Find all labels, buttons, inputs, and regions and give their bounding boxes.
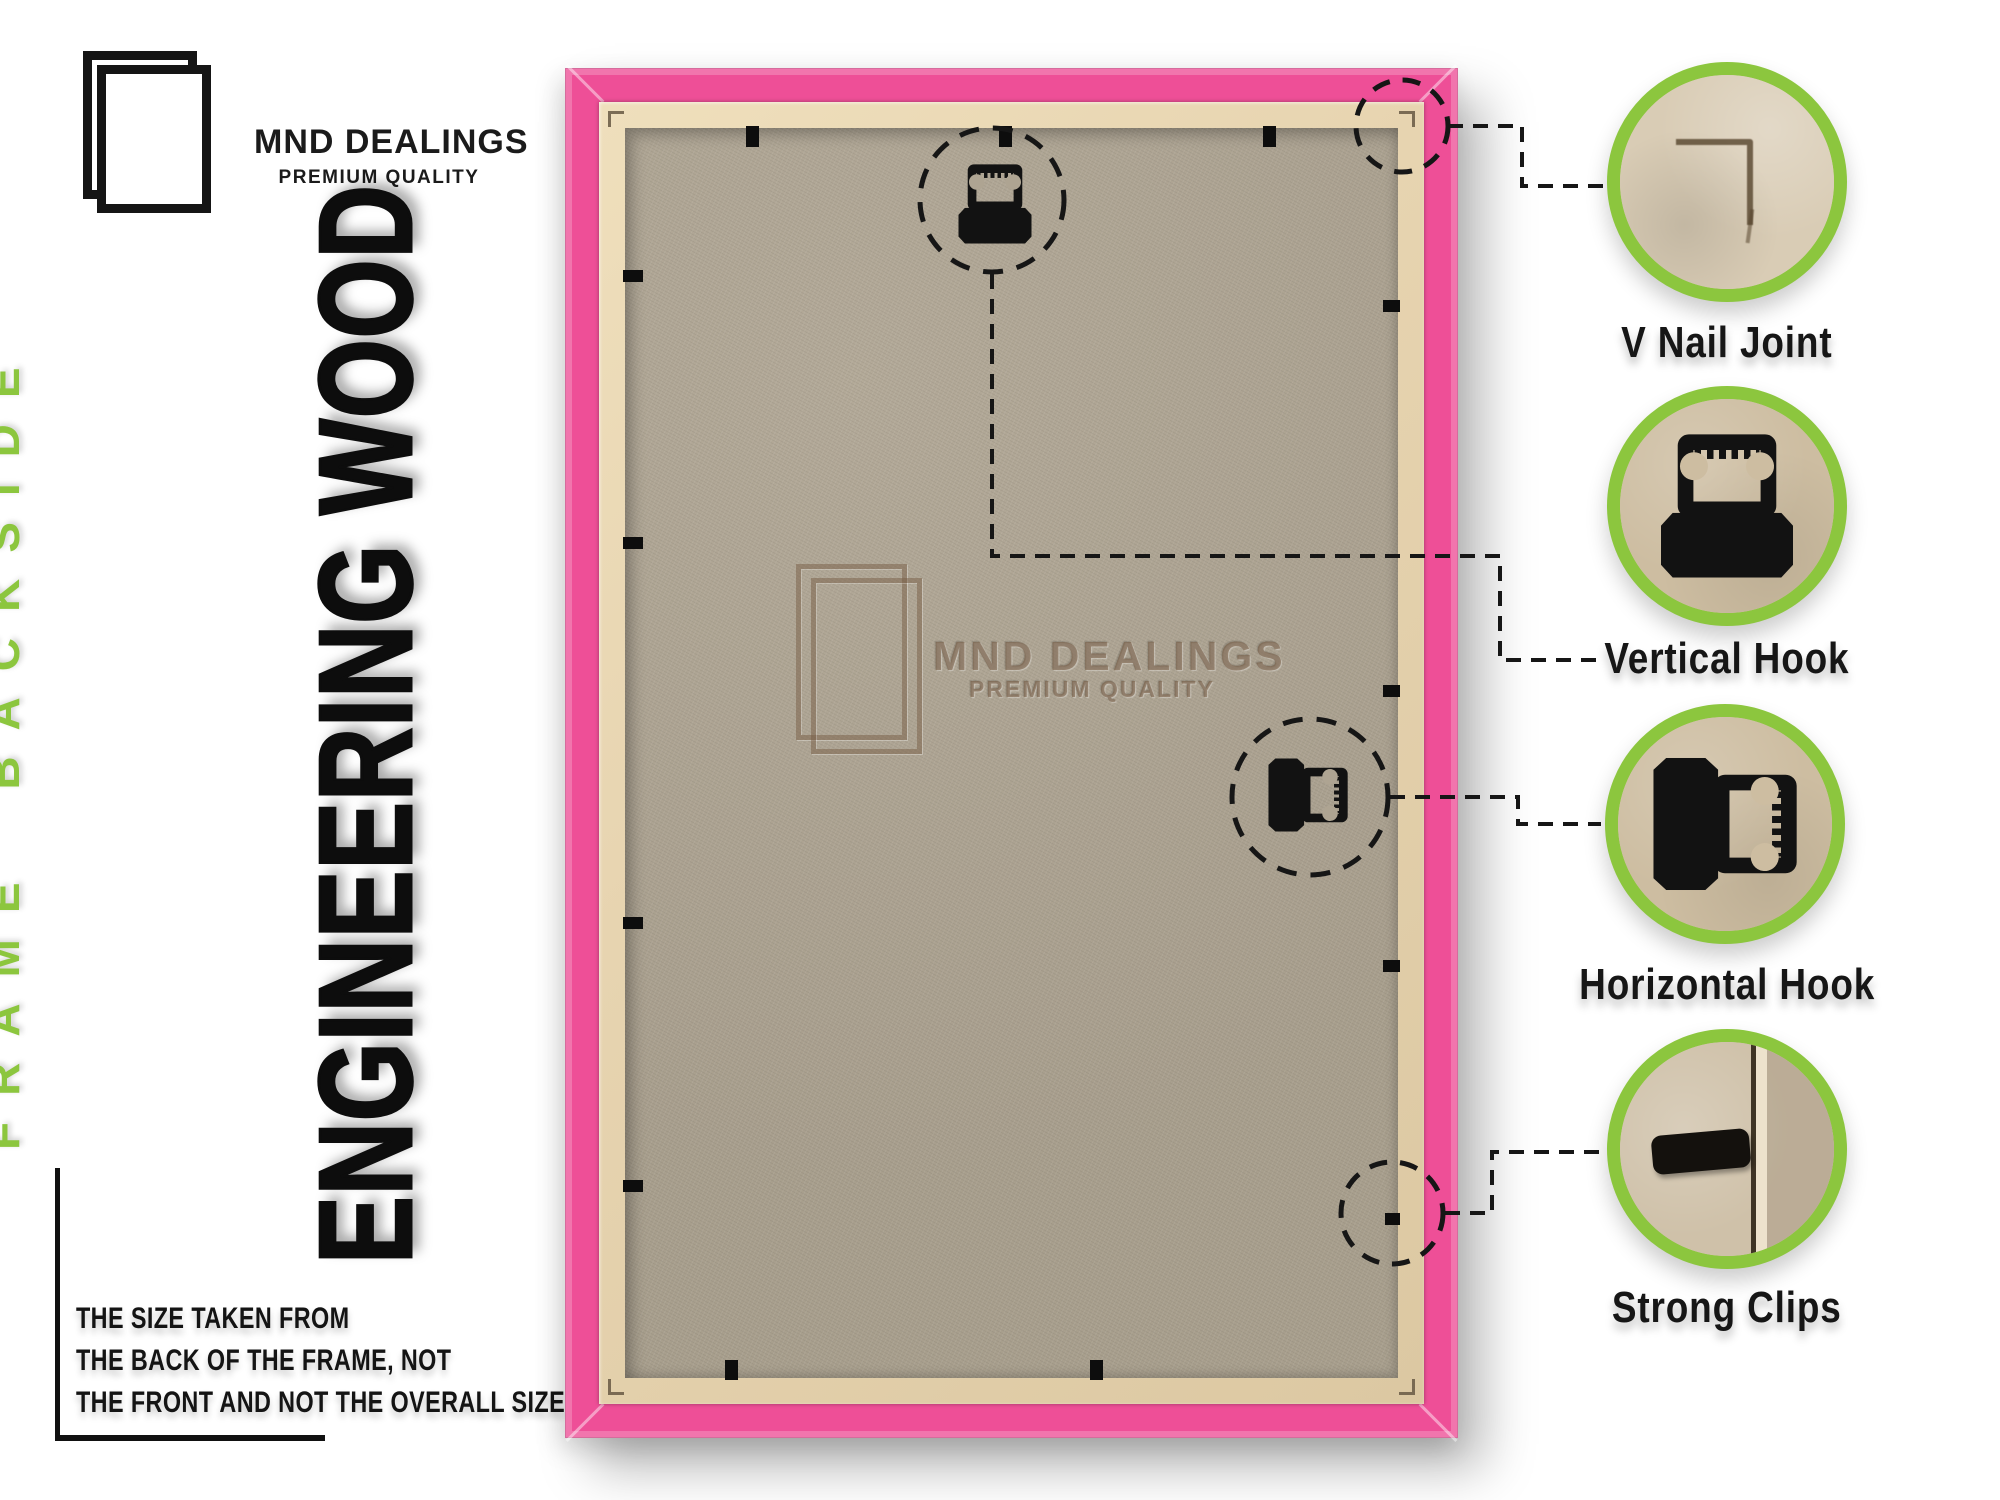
hook-screw-hole bbox=[1322, 769, 1338, 785]
strong-clip bbox=[623, 270, 643, 282]
strong-clip bbox=[746, 126, 759, 147]
clip-tab bbox=[1651, 1128, 1752, 1175]
strong-clip bbox=[1383, 685, 1400, 697]
horizontal-hook-photo bbox=[1618, 717, 1832, 931]
hook-plate bbox=[1661, 513, 1793, 578]
strong-clip bbox=[1383, 960, 1400, 972]
hook-plate bbox=[1653, 758, 1718, 890]
brand-name: MND DEALINGS bbox=[254, 123, 504, 162]
callout-photo-strong-clips bbox=[1607, 1029, 1847, 1269]
watermark: MND DEALINGS PREMIUM QUALITY bbox=[625, 128, 1398, 1378]
callout-photo-v-nail-joint bbox=[1607, 62, 1847, 302]
horizontal-hook-hardware bbox=[1268, 758, 1347, 831]
watermark-logo-icon bbox=[796, 564, 907, 740]
watermark-tagline: PREMIUM QUALITY bbox=[969, 676, 1215, 703]
hook-screw-hole bbox=[969, 174, 985, 190]
v-nail-mark bbox=[608, 1379, 624, 1395]
corner-crack bbox=[1611, 233, 1684, 280]
hook-buckle bbox=[968, 164, 1023, 210]
strong-clip bbox=[725, 1360, 738, 1380]
callout-label-strong-clips: Strong Clips bbox=[1507, 1283, 1947, 1333]
miter-joint-line bbox=[566, 64, 605, 103]
strong-clip bbox=[1090, 1360, 1103, 1380]
strong-clip bbox=[999, 126, 1012, 147]
watermark-logo-icon bbox=[811, 578, 922, 754]
hook-screw-hole bbox=[1005, 173, 1023, 191]
strong-clips-photo bbox=[1620, 1042, 1834, 1256]
strong-clip bbox=[623, 537, 643, 549]
vertical-hook-photo bbox=[1620, 399, 1834, 613]
strong-clip bbox=[623, 917, 643, 929]
logo-front-rectangle bbox=[97, 65, 211, 213]
material-label: ENGINEERING WOOD bbox=[441, 256, 559, 1264]
hook-screw-hole bbox=[1321, 805, 1339, 823]
v-nail-mark bbox=[1399, 1379, 1415, 1395]
callout-label-v-nail-joint: V Nail Joint bbox=[1507, 318, 1947, 368]
mdf-back-board: MND DEALINGS PREMIUM QUALITY bbox=[625, 128, 1398, 1378]
watermark-name: MND DEALINGS bbox=[933, 633, 1286, 680]
miter-joint-line bbox=[566, 1403, 605, 1442]
leader-strong-clips bbox=[1445, 1152, 1604, 1213]
brand-text: MND DEALINGS PREMIUM QUALITY bbox=[254, 123, 504, 189]
hook-buckle bbox=[1302, 768, 1348, 823]
callout-label-vertical-hook: Vertical Hook bbox=[1507, 634, 1947, 684]
vertical-hook-hardware bbox=[1661, 434, 1793, 577]
hook-plate bbox=[1268, 758, 1304, 831]
frame-backside-label: FRAME BACKSIDE bbox=[30, 400, 90, 1150]
callout-label-horizontal-hook: Horizontal Hook bbox=[1507, 960, 1947, 1010]
v-nail-mark bbox=[1399, 111, 1415, 127]
strong-clip bbox=[623, 1180, 643, 1192]
strong-clip bbox=[1263, 126, 1276, 147]
miter-joint-line bbox=[1419, 64, 1458, 103]
v-nail-groove bbox=[1729, 206, 1755, 243]
hook-screw-hole bbox=[1751, 777, 1779, 805]
frame-edge-shade bbox=[1767, 1042, 1834, 1256]
leader-v-nail-joint bbox=[1448, 126, 1604, 186]
note-bracket-vertical-line bbox=[55, 1168, 60, 1440]
frame-seam bbox=[1756, 1042, 1767, 1256]
callout-photo-horizontal-hook bbox=[1605, 704, 1845, 944]
hook-plate bbox=[958, 208, 1031, 244]
strong-clip bbox=[1385, 1213, 1400, 1225]
miter-joint-line bbox=[1419, 1403, 1458, 1442]
vertical-hook-hardware bbox=[958, 164, 1031, 243]
v-nail-mark bbox=[608, 111, 624, 127]
note-bracket-horizontal-line bbox=[55, 1435, 325, 1441]
brand-frames-icon bbox=[80, 45, 230, 220]
callout-photo-vertical-hook bbox=[1607, 386, 1847, 626]
v-nail-joint-photo bbox=[1620, 75, 1834, 289]
poster-canvas: MND DEALINGS PREMIUM QUALITY FRAME BACKS… bbox=[0, 0, 2000, 1500]
hook-screw-hole bbox=[1680, 452, 1708, 480]
frame-back: MND DEALINGS PREMIUM QUALITY bbox=[565, 68, 1458, 1438]
strong-clip bbox=[1383, 300, 1400, 312]
horizontal-hook-hardware bbox=[1653, 758, 1796, 890]
